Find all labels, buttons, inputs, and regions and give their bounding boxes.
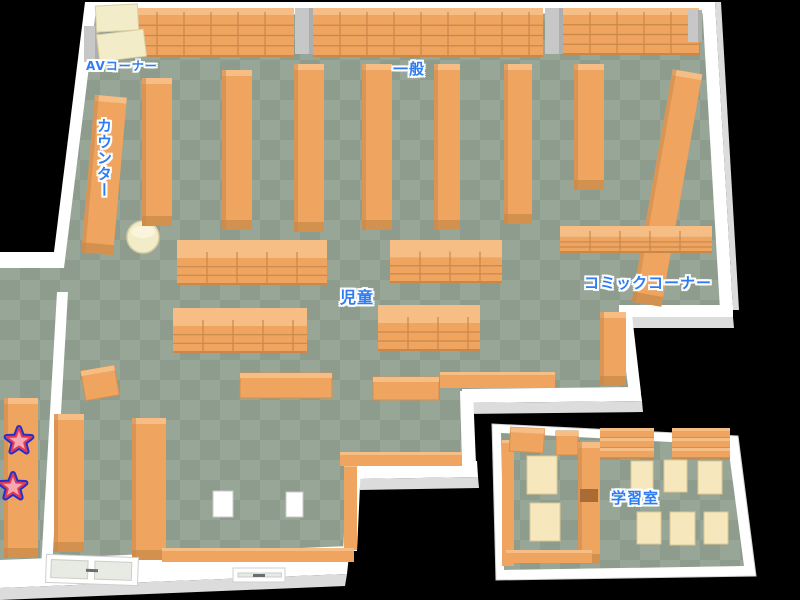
bookshelf <box>504 64 532 224</box>
wall-segment <box>619 305 733 317</box>
wall-segment <box>462 387 642 403</box>
reading-table <box>373 377 439 400</box>
study-desk <box>664 460 687 492</box>
wall-shelf <box>162 548 354 562</box>
entrance-door <box>46 554 139 585</box>
study-desk <box>530 503 560 541</box>
pillar <box>295 8 313 54</box>
label-children-area: 児童 <box>340 284 374 308</box>
white-box <box>213 491 233 517</box>
study-desk <box>670 512 695 545</box>
study-desk <box>637 512 661 544</box>
bookshelf <box>434 64 460 230</box>
white-box <box>286 492 303 517</box>
label-comic-corner: コミックコーナー <box>584 272 712 293</box>
bookshelf <box>574 64 604 190</box>
wall-shadow <box>359 477 479 490</box>
study-desk <box>704 512 728 544</box>
bookshelf <box>222 70 252 230</box>
reading-table <box>556 431 578 455</box>
step-rack <box>672 428 730 458</box>
bookshelf <box>54 414 84 552</box>
wall-bookshelf <box>130 8 294 56</box>
floor-map-canvas <box>0 0 800 600</box>
wall-shelf <box>506 550 592 563</box>
bookshelf <box>600 312 626 386</box>
pillar <box>545 8 563 54</box>
low-bookshelf <box>177 240 327 284</box>
shelf-gap <box>580 489 598 502</box>
wall-segment <box>0 252 62 268</box>
wall-shelf <box>440 372 555 388</box>
wall-shadow <box>463 401 643 414</box>
bookshelf <box>132 418 166 560</box>
bookshelf <box>578 442 600 564</box>
av-shelf <box>95 4 138 32</box>
wall-bookshelf <box>313 8 543 56</box>
wall-shelf <box>344 464 357 550</box>
reading-table <box>81 365 120 400</box>
low-bookshelf <box>173 308 307 352</box>
label-av-corner: AVコーナー <box>86 57 158 74</box>
bookshelf <box>294 64 324 232</box>
label-counter: カウンター <box>94 118 115 198</box>
wall-shelf <box>502 440 514 566</box>
library-floor-map: AVコーナー 一般 カウンター 児童 コミックコーナー 学習室 <box>0 0 800 600</box>
wall-shelf <box>340 452 462 466</box>
bookshelf <box>142 78 172 226</box>
wall-shadow <box>619 317 734 328</box>
low-bookshelf <box>560 226 712 252</box>
pillar <box>688 10 702 42</box>
low-bookshelf <box>390 240 502 282</box>
reading-table <box>240 373 332 398</box>
label-study-room: 学習室 <box>611 487 659 508</box>
entrance-door <box>233 568 285 582</box>
study-desk <box>698 461 722 494</box>
reading-table <box>509 427 544 453</box>
label-general-area: 一般 <box>393 58 425 79</box>
wall-bookshelf <box>563 8 699 54</box>
low-bookshelf <box>378 305 480 350</box>
step-rack <box>600 428 654 458</box>
bookshelf <box>362 64 392 230</box>
study-desk <box>527 456 557 494</box>
